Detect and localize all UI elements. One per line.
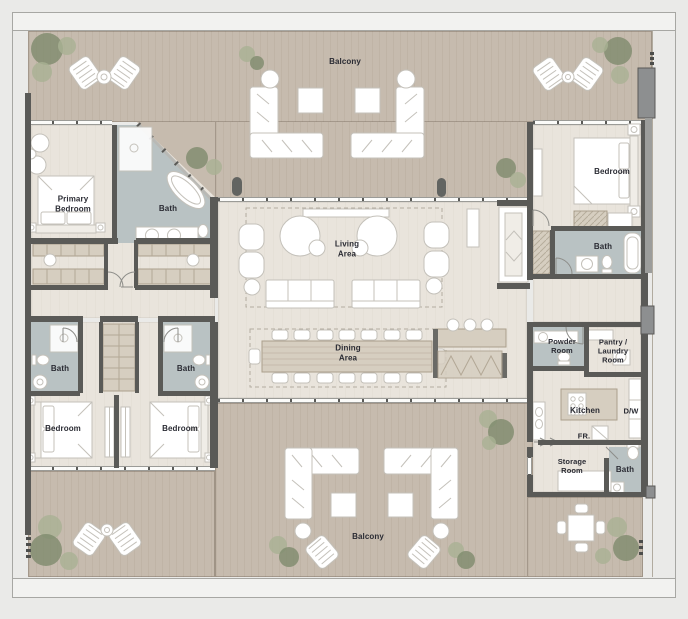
label-balcony-top: Balcony bbox=[329, 57, 361, 67]
balcony-bottom-deck-center bbox=[215, 403, 533, 577]
label-living-area: Living Area bbox=[335, 239, 359, 258]
label-dishwasher: D/W bbox=[624, 407, 639, 416]
label-bath-left-1: Bath bbox=[51, 364, 69, 374]
bottom-frame-band bbox=[12, 578, 676, 598]
label-kitchen: Kitchen bbox=[570, 406, 600, 416]
label-bath-left-2: Bath bbox=[177, 364, 195, 374]
balcony-top-deck-center bbox=[215, 122, 528, 198]
label-primary-bedroom: Primary Bedroom bbox=[55, 194, 91, 213]
label-powder-room: Powder Room bbox=[548, 337, 576, 355]
room-bath-right-floor bbox=[555, 231, 641, 274]
left-frame-line bbox=[12, 12, 13, 598]
label-primary-bath: Bath bbox=[159, 204, 177, 214]
label-bedroom-right: Bedroom bbox=[594, 167, 630, 177]
label-bath-bottom-right: Bath bbox=[616, 465, 634, 475]
label-pantry-laundry: Pantry / Laundry Room bbox=[598, 338, 628, 365]
label-bath-right: Bath bbox=[594, 242, 612, 252]
room-bath-left-1-floor bbox=[31, 322, 78, 392]
room-bedroom-right-floor bbox=[533, 125, 641, 322]
balcony-bottom-deck-left bbox=[28, 471, 215, 577]
room-primary-suite-floor bbox=[31, 125, 215, 318]
window-storage bbox=[540, 492, 580, 497]
glass-wall-living bbox=[218, 197, 527, 202]
window-primary-bedroom bbox=[28, 120, 112, 125]
deck-edge-line bbox=[652, 31, 653, 577]
label-dining-area: Dining Area bbox=[335, 343, 360, 362]
floor-plan: Balcony Primary Bedroom Bath Living Area… bbox=[0, 0, 688, 619]
room-living-dining-floor bbox=[218, 202, 527, 398]
window-bedrooms-left bbox=[28, 466, 215, 471]
top-frame-band bbox=[12, 12, 676, 31]
label-balcony-bottom: Balcony bbox=[352, 532, 384, 542]
label-bedroom-left-1: Bedroom bbox=[45, 424, 81, 434]
balcony-bottom-deck-right bbox=[527, 497, 643, 577]
balcony-top-deck bbox=[28, 31, 652, 122]
label-fridge: FR. bbox=[578, 432, 590, 441]
label-storage-room: Storage Room bbox=[558, 457, 587, 475]
label-bedroom-left-2: Bedroom bbox=[162, 424, 198, 434]
glass-wall-dining bbox=[218, 398, 527, 403]
right-frame-line bbox=[675, 12, 676, 598]
window-storage-side bbox=[527, 456, 532, 476]
window-bedroom-right bbox=[533, 120, 641, 125]
room-bath-left-2-floor bbox=[163, 322, 213, 392]
